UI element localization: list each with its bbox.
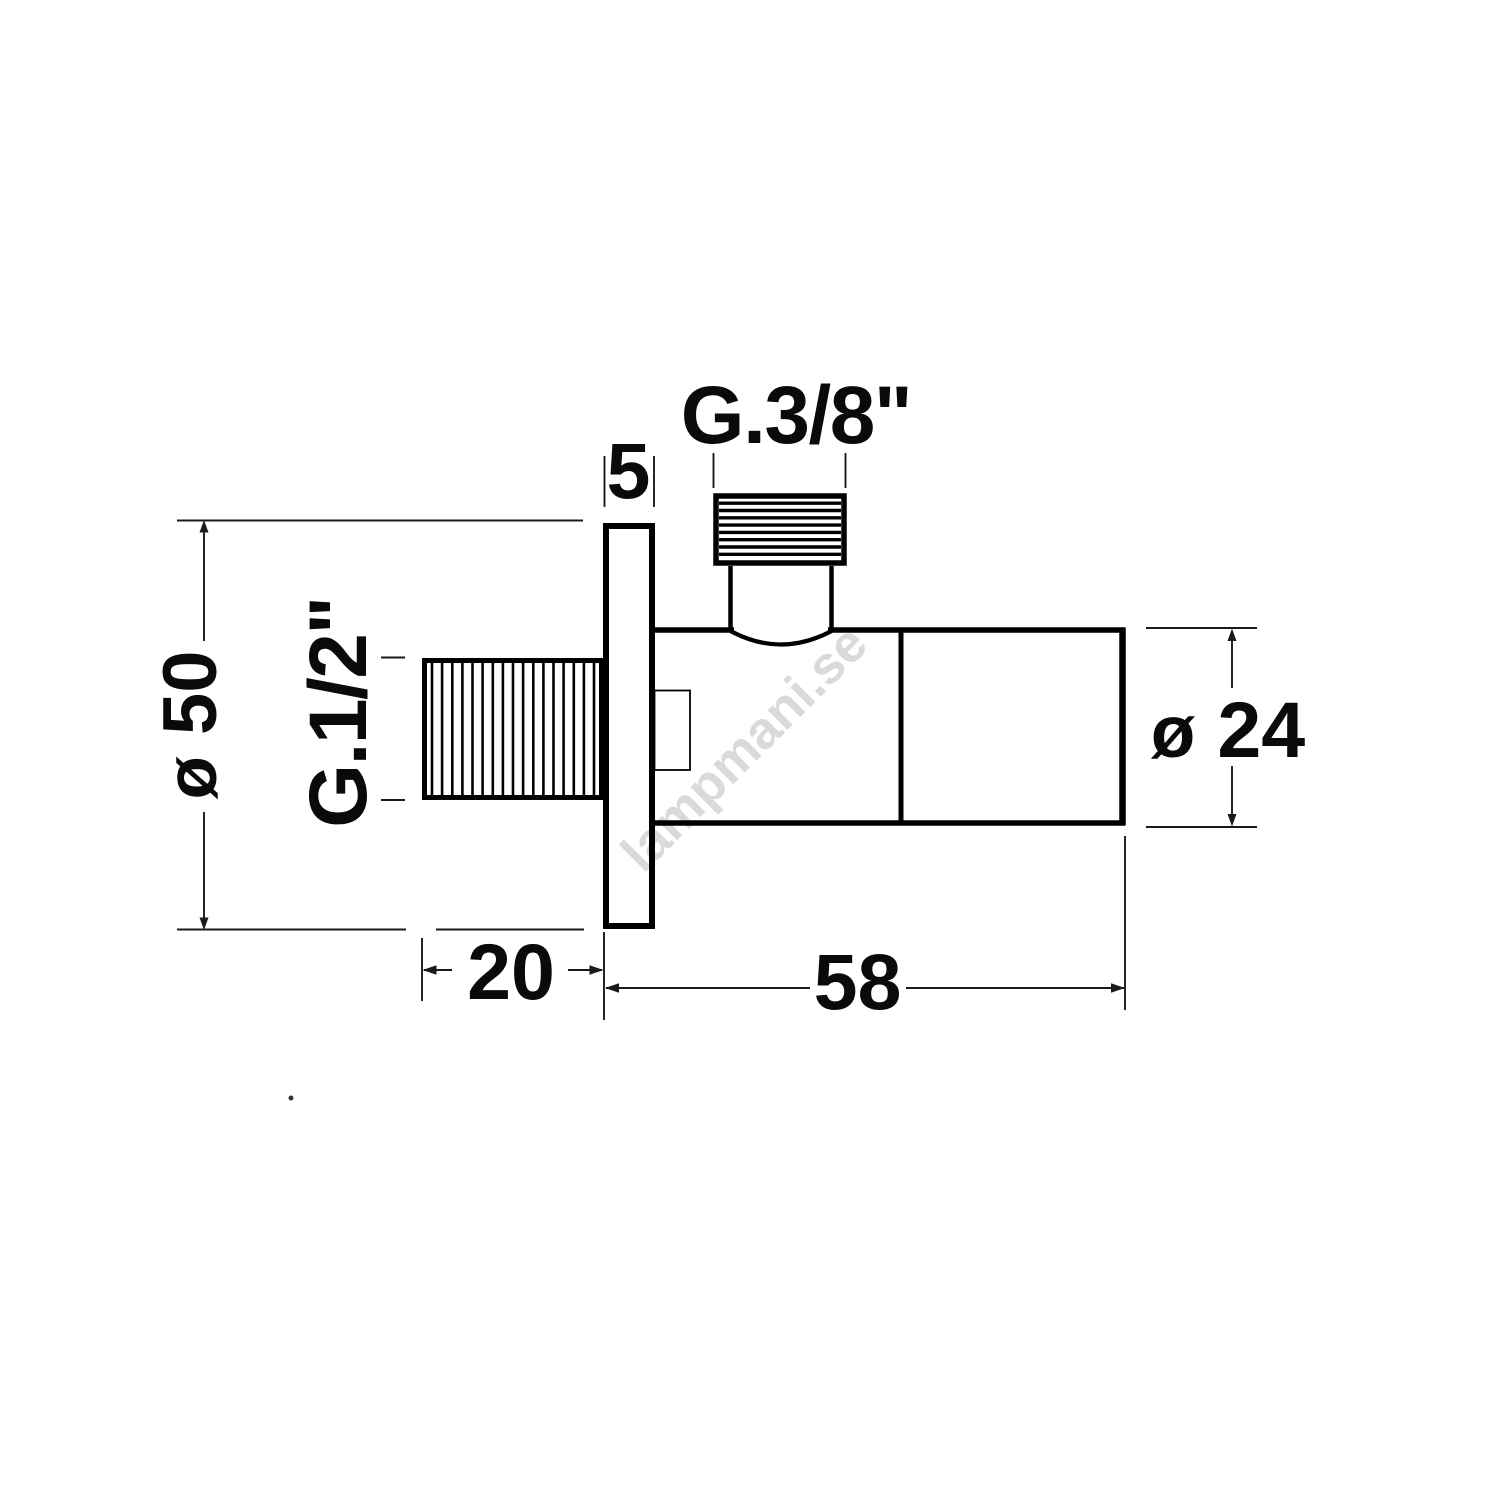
svg-text:ø 50: ø 50 (148, 650, 233, 799)
svg-text:G.1/2": G.1/2" (293, 597, 384, 827)
svg-text:5: 5 (607, 426, 651, 515)
svg-text:20: 20 (467, 927, 555, 1016)
svg-text:G.3/8": G.3/8" (681, 370, 911, 461)
svg-text:ø 24: ø 24 (1151, 685, 1305, 774)
svg-text:58: 58 (814, 937, 902, 1026)
